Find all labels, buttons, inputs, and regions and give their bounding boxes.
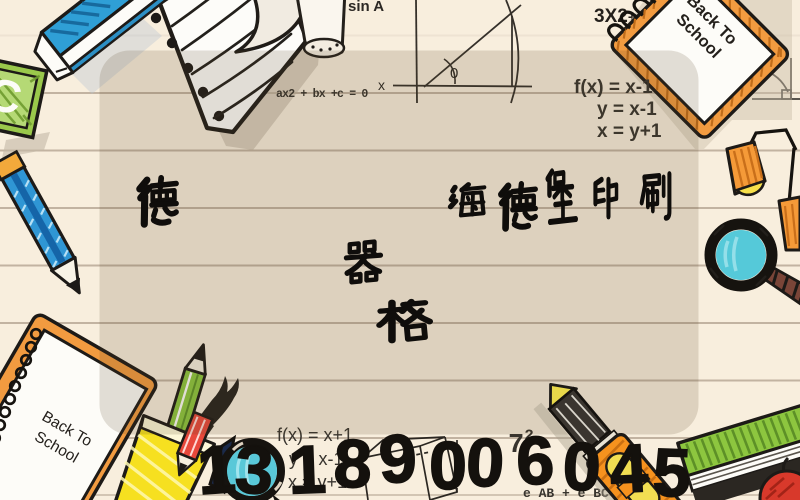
svg-text:8: 8 <box>333 425 373 500</box>
svg-text:4: 4 <box>608 430 650 500</box>
svg-text:9: 9 <box>377 420 419 498</box>
svg-text:0: 0 <box>562 428 602 500</box>
svg-text:5: 5 <box>652 434 692 500</box>
svg-text:0: 0 <box>464 424 506 500</box>
svg-text:6: 6 <box>515 422 555 499</box>
svg-text:3: 3 <box>233 431 275 500</box>
svg-text:1: 1 <box>195 431 238 500</box>
svg-text:sin A: sin A <box>348 0 384 15</box>
svg-text:1: 1 <box>287 431 327 500</box>
svg-text:0: 0 <box>429 428 467 500</box>
